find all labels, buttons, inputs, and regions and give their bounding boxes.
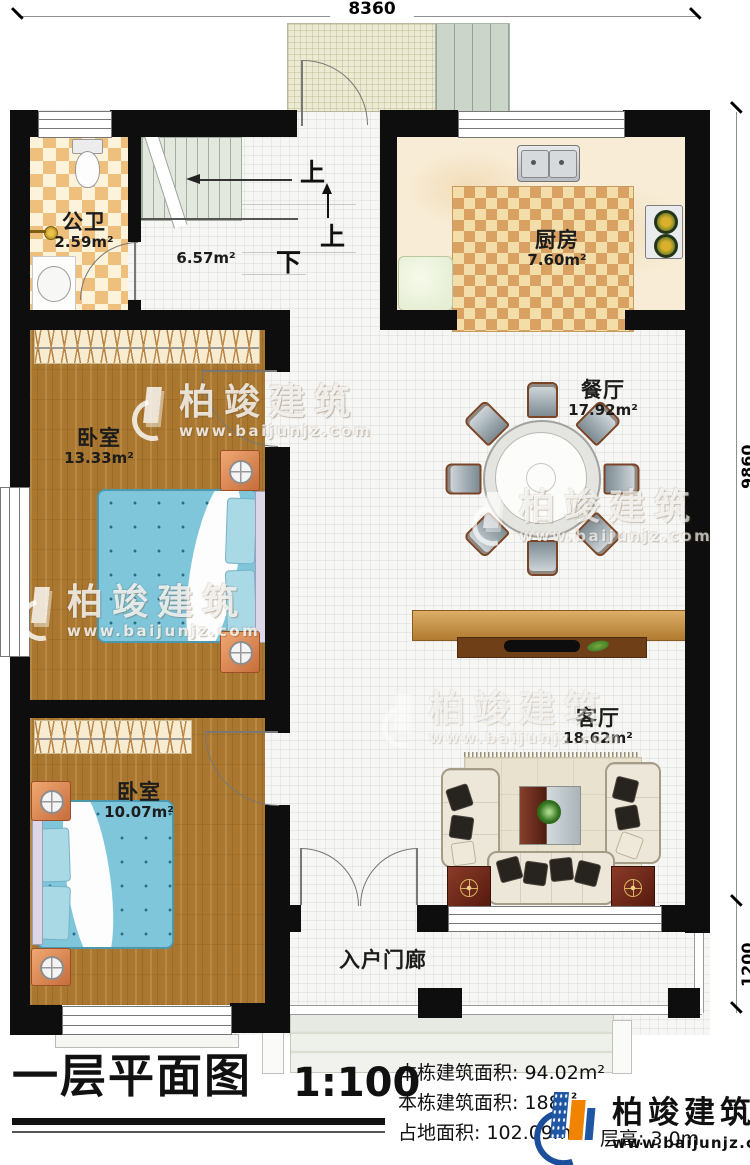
side-table-left: [447, 866, 491, 910]
watermark: 柏竣建筑 www.baijunjz.com: [382, 692, 622, 746]
coffee-table-plant-icon: [537, 800, 561, 824]
room-label-porch: 入户门廊: [308, 948, 458, 972]
wall: [380, 310, 457, 330]
side-table-right: [611, 866, 655, 910]
dimension-tick: [689, 7, 701, 19]
room-name: 公卫: [62, 210, 106, 234]
dimension-right-value: 9860: [738, 441, 750, 492]
porch-edge-bottom: [288, 1005, 702, 1015]
room-label-bathroom: 公卫 2.59m²: [34, 210, 134, 251]
wall: [10, 1005, 62, 1035]
stove-burner-top: [654, 210, 678, 234]
wall: [417, 905, 448, 932]
wall: [265, 447, 290, 733]
stair-direction-line: [200, 179, 292, 181]
wall: [10, 310, 290, 330]
room-name: 厨房: [535, 228, 579, 252]
dimension-top-value: 8360: [330, 0, 414, 19]
watermark-logo-icon: [20, 587, 60, 637]
room-area: 7.60m²: [527, 252, 586, 269]
stair-up-label-b: 上: [320, 224, 345, 249]
sink-drain-left: [531, 160, 536, 165]
watermark-logo-icon: [382, 694, 422, 744]
bedroom-bottom-window: [62, 1006, 232, 1035]
title-underline-thick: [12, 1118, 385, 1125]
wall: [625, 310, 710, 330]
watermark: 柏竣建筑 www.baijunjz.com: [132, 385, 372, 439]
room-label-stair-hall: 6.57m²: [166, 250, 246, 267]
watermark: 柏竣建筑 www.baijunjz.com: [472, 490, 712, 544]
pillow: [225, 497, 257, 564]
room-name: 餐厅: [581, 378, 625, 402]
fridge: [398, 256, 453, 311]
company-logo-icon: [532, 1092, 610, 1162]
floor-plan: 公卫 2.59m² 6.57m² 厨房 7.60m² 餐厅 17.92m² 卧室…: [0, 0, 750, 1165]
toilet-bowl: [75, 151, 100, 188]
watermark-logo-icon: [472, 492, 512, 542]
watermark-url: www.baijunjz.com: [429, 731, 622, 746]
watermark-brand: 柏竣建筑: [179, 385, 372, 421]
watermark-url: www.baijunjz.com: [519, 529, 712, 544]
tv: [504, 640, 580, 652]
closet-bedroom-bottom: [34, 720, 192, 754]
sofa-pillow: [523, 861, 549, 887]
nightstand: [220, 450, 260, 491]
dimension-tick: [11, 7, 23, 19]
pillow: [39, 885, 71, 940]
stair-up-arrow-left: [186, 174, 200, 184]
entry-steps-cheek-right: [612, 1020, 632, 1074]
watermark-logo-icon: [132, 387, 172, 437]
info-line-1: 本栋建筑面积: 94.02m²: [398, 1064, 605, 1083]
dining-chair: [527, 540, 558, 576]
drawing-title: 一层平面图: [12, 1053, 252, 1099]
wall: [265, 310, 290, 372]
room-area: 2.59m²: [54, 234, 113, 251]
wall: [380, 110, 458, 137]
watermark-brand: 柏竣建筑: [519, 490, 712, 526]
title-underline-thin: [12, 1131, 385, 1133]
bathroom-window: [38, 111, 112, 138]
vanity-basin: [37, 266, 71, 302]
room-name: 入户门廊: [339, 948, 427, 972]
bedroom-window-outer-sill: [55, 1034, 239, 1048]
wall: [110, 110, 297, 137]
stair-railing: [141, 218, 298, 220]
watermark: 柏竣建筑 www.baijunjz.com: [20, 585, 260, 639]
watermark-brand: 柏竣建筑: [67, 585, 260, 621]
wall: [280, 905, 301, 932]
sofa-pillow: [449, 815, 475, 841]
rear-canopy-panels: [435, 23, 510, 112]
wall: [10, 110, 30, 487]
sofa-pillow: [614, 804, 641, 831]
nightstand: [31, 781, 71, 821]
closet-bedroom-top: [34, 329, 260, 364]
sofa-pillow: [549, 857, 574, 882]
nightstand: [31, 948, 71, 986]
room-label-dining: 餐厅 17.92m²: [553, 378, 653, 419]
watermark-url: www.baijunjz.com: [179, 424, 372, 439]
wall: [10, 700, 290, 718]
stair-up-label-a: 上: [300, 160, 325, 185]
company-logo-brand: 柏竣建筑: [612, 1098, 750, 1129]
wall: [660, 905, 690, 932]
watermark-url: www.baijunjz.com: [67, 624, 260, 639]
wall: [380, 137, 397, 313]
room-area: 10.07m²: [104, 804, 174, 821]
room-name: 卧室: [77, 426, 121, 450]
up-arrow-shaft: [327, 192, 329, 218]
logo-tower-blue-small: [585, 1108, 596, 1140]
room-area: 13.33m²: [64, 450, 134, 467]
porch-post: [668, 988, 700, 1018]
dimension-porch-depth-value: 1200: [738, 939, 750, 990]
living-room-window: [448, 906, 662, 932]
room-name: 卧室: [117, 780, 161, 804]
sink-drain-right: [559, 160, 564, 165]
company-logo-url: www.baijunjz.com: [612, 1136, 750, 1151]
room-label-kitchen: 厨房 7.60m²: [507, 228, 607, 269]
room-area: 17.92m²: [568, 402, 638, 419]
pillow: [39, 827, 71, 882]
hall-step-line-1: [242, 204, 356, 205]
sofa-pillow: [451, 841, 477, 867]
watermark-brand: 柏竣建筑: [429, 692, 622, 728]
room-label-bedroom-bottom: 卧室 10.07m²: [89, 780, 189, 821]
headboard: [32, 802, 43, 945]
stair-down-label: 下: [276, 250, 301, 275]
dimension-line-right: [736, 112, 737, 1013]
room-area: 6.57m²: [176, 250, 235, 267]
stove-burner-bottom: [654, 234, 678, 258]
porch-post: [418, 988, 462, 1018]
kitchen-window: [458, 111, 625, 138]
